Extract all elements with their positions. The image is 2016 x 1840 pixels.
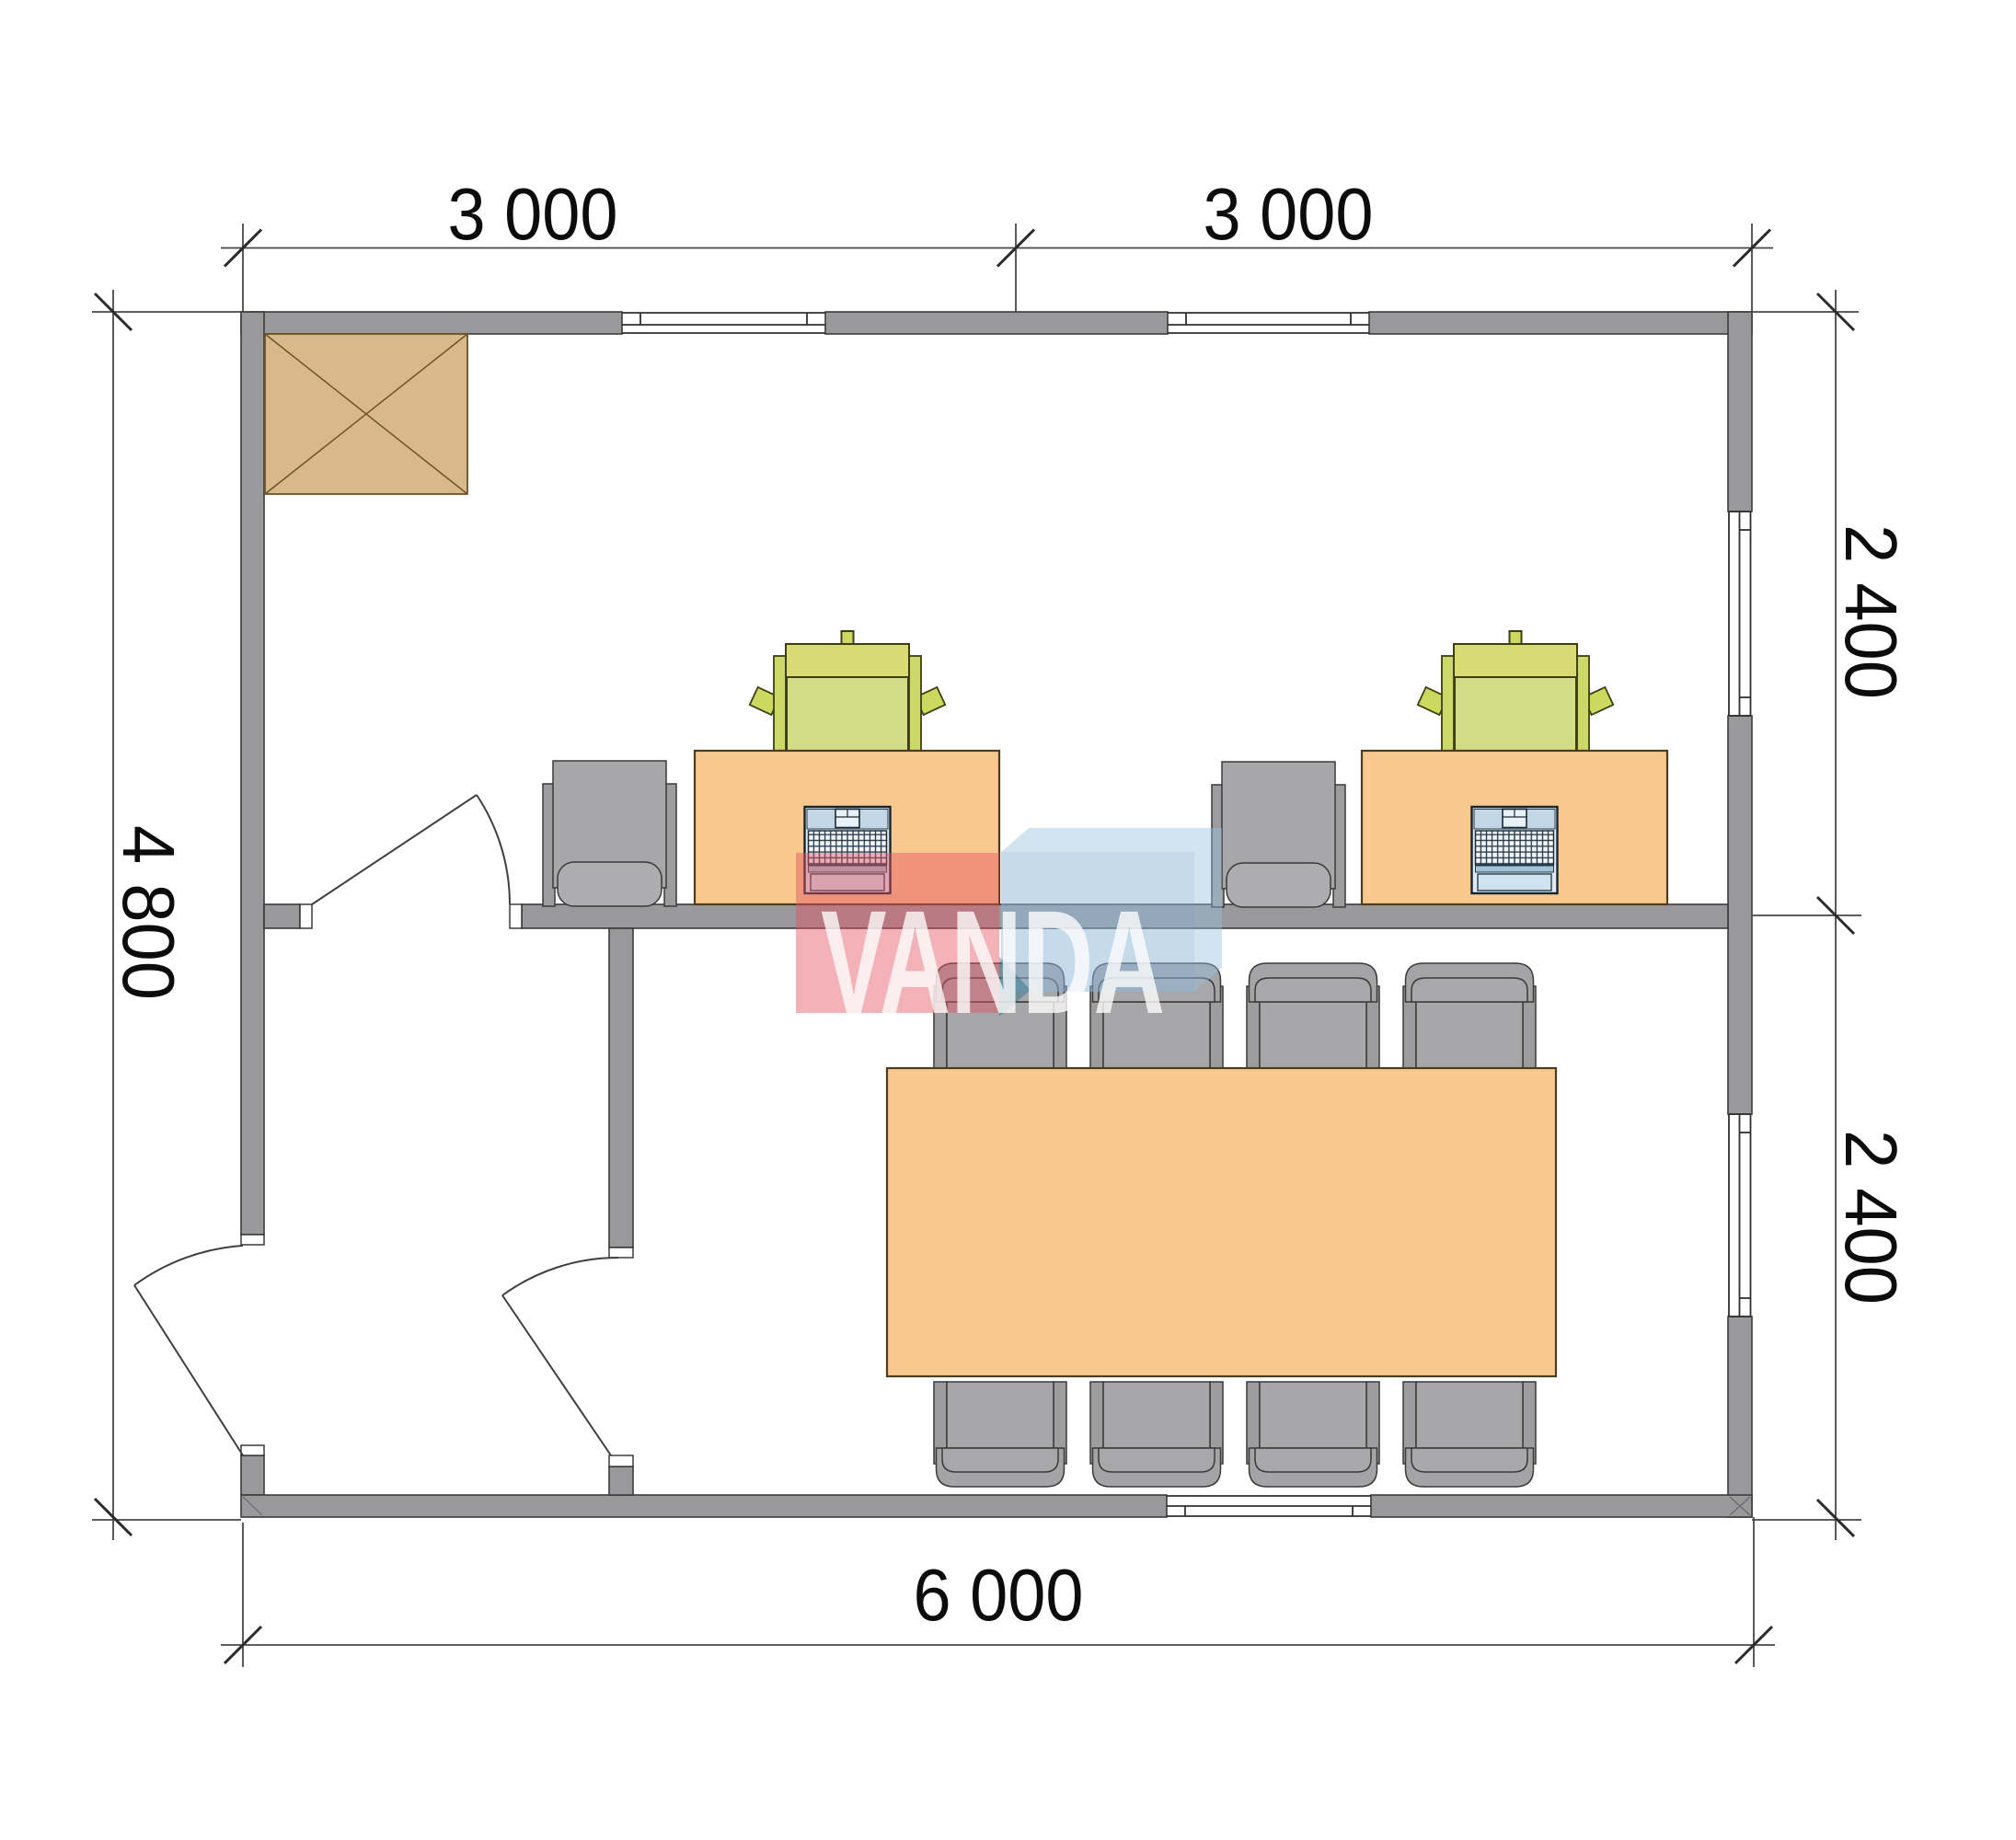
svg-text:4 800: 4 800 [108, 825, 190, 1000]
svg-text:3 000: 3 000 [448, 173, 618, 255]
svg-text:VANDA: VANDA [821, 880, 1165, 1044]
svg-text:3 000: 3 000 [1204, 173, 1374, 255]
svg-text:6 000: 6 000 [914, 1554, 1084, 1636]
svg-text:2 400: 2 400 [1830, 1130, 1912, 1305]
svg-text:2 400: 2 400 [1830, 524, 1912, 699]
